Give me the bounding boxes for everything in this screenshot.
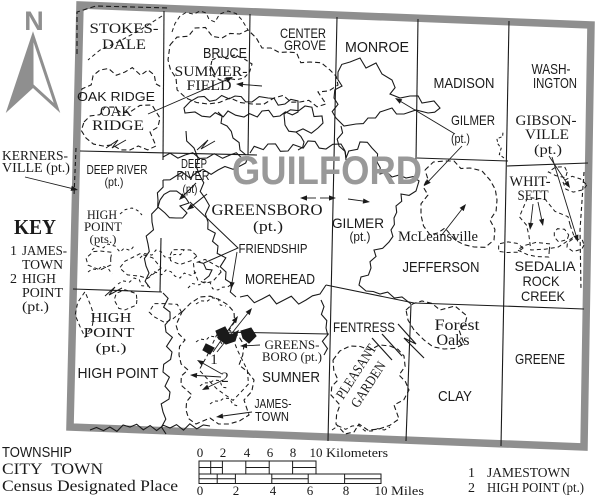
svg-text:Oaks: Oaks xyxy=(437,332,470,349)
svg-text:GROVE: GROVE xyxy=(284,37,326,53)
svg-text:DALE: DALE xyxy=(102,37,146,53)
svg-text:JAMES-: JAMES- xyxy=(22,244,67,259)
svg-text:VILLE: VILLE xyxy=(525,127,569,143)
svg-text:4: 4 xyxy=(270,483,277,497)
svg-text:HIGH POINT: HIGH POINT xyxy=(78,365,159,382)
svg-text:10: 10 xyxy=(375,483,388,497)
svg-text:SEDALIA: SEDALIA xyxy=(515,258,577,274)
svg-text:(pt.): (pt.) xyxy=(534,143,562,158)
svg-text:8: 8 xyxy=(343,483,350,497)
svg-text:SUMNER: SUMNER xyxy=(262,369,320,386)
svg-text:6: 6 xyxy=(307,483,314,497)
svg-text:RIDGE: RIDGE xyxy=(92,118,144,134)
svg-text:TOWN: TOWN xyxy=(22,258,63,273)
svg-text:2: 2 xyxy=(220,445,227,460)
svg-text:POINT: POINT xyxy=(84,326,136,341)
svg-text:HIGH: HIGH xyxy=(91,311,132,326)
svg-text:VILLE (pt.): VILLE (pt.) xyxy=(2,161,70,176)
svg-text:FRIENDSHIP: FRIENDSHIP xyxy=(239,241,308,256)
svg-text:GUILFORD: GUILFORD xyxy=(232,149,422,193)
svg-text:N: N xyxy=(24,6,44,36)
svg-text:TOWNSHIP: TOWNSHIP xyxy=(2,444,72,461)
svg-text:2: 2 xyxy=(468,481,475,496)
svg-text:JEFFERSON: JEFFERSON xyxy=(403,259,480,276)
svg-text:TOWN: TOWN xyxy=(255,409,289,424)
svg-text:6: 6 xyxy=(267,445,274,460)
svg-text:2: 2 xyxy=(10,272,17,287)
svg-text:0: 0 xyxy=(197,445,204,460)
svg-text:(pt.): (pt.) xyxy=(105,175,124,189)
svg-text:(pt.): (pt.) xyxy=(350,229,371,244)
svg-text:JAMESTOWN: JAMESTOWN xyxy=(487,466,570,481)
svg-text:0: 0 xyxy=(197,483,204,497)
svg-text:POINT: POINT xyxy=(22,286,63,301)
svg-text:KEY: KEY xyxy=(14,215,56,239)
svg-text:CITY TOWN: CITY TOWN xyxy=(2,461,103,478)
svg-text:4: 4 xyxy=(244,445,251,460)
svg-text:(pt.): (pt.) xyxy=(253,219,283,235)
svg-text:McLeansville: McLeansville xyxy=(398,229,478,245)
svg-text:2: 2 xyxy=(221,370,229,386)
svg-text:SETT: SETT xyxy=(518,188,549,204)
svg-text:1: 1 xyxy=(10,244,17,259)
svg-text:BRUCE: BRUCE xyxy=(203,45,247,62)
svg-text:(pt.): (pt.) xyxy=(96,340,127,355)
svg-text:GREENE: GREENE xyxy=(515,351,565,368)
svg-text:10: 10 xyxy=(310,445,323,460)
svg-text:(pt.): (pt.) xyxy=(451,131,470,146)
svg-text:2: 2 xyxy=(233,483,240,497)
svg-text:INGTON: INGTON xyxy=(533,75,577,92)
svg-text:8: 8 xyxy=(290,445,297,460)
svg-text:MONROE: MONROE xyxy=(345,39,409,56)
svg-text:MADISON: MADISON xyxy=(434,75,495,92)
svg-text:(pt.): (pt.) xyxy=(22,300,49,315)
svg-text:GILMER: GILMER xyxy=(451,112,495,128)
svg-text:(pt): (pt) xyxy=(183,182,198,196)
svg-text:Census Designated Place: Census Designated Place xyxy=(2,478,178,495)
svg-text:MOREHEAD: MOREHEAD xyxy=(245,271,315,288)
svg-text:ROCK: ROCK xyxy=(523,273,561,289)
svg-text:Miles: Miles xyxy=(391,483,424,497)
svg-text:CREEK: CREEK xyxy=(521,288,566,304)
svg-text:RIVER: RIVER xyxy=(177,168,210,183)
svg-text:STOKES-: STOKES- xyxy=(90,21,159,37)
svg-text:1: 1 xyxy=(468,466,475,481)
svg-text:(pts.): (pts.) xyxy=(90,232,117,246)
svg-text:1: 1 xyxy=(210,352,218,368)
svg-text:Kilometers: Kilometers xyxy=(326,445,388,460)
svg-text:GREENSBORO: GREENSBORO xyxy=(212,202,323,219)
svg-text:HIGH POINT (pt.): HIGH POINT (pt.) xyxy=(487,481,584,496)
svg-text:FIELD: FIELD xyxy=(187,78,232,94)
svg-text:CLAY: CLAY xyxy=(438,388,472,405)
svg-text:HIGH: HIGH xyxy=(22,272,56,287)
svg-text:OAK RIDGE: OAK RIDGE xyxy=(77,89,155,104)
svg-text:FENTRESS: FENTRESS xyxy=(333,319,395,335)
svg-text:BORO (pt.): BORO (pt.) xyxy=(262,349,322,364)
